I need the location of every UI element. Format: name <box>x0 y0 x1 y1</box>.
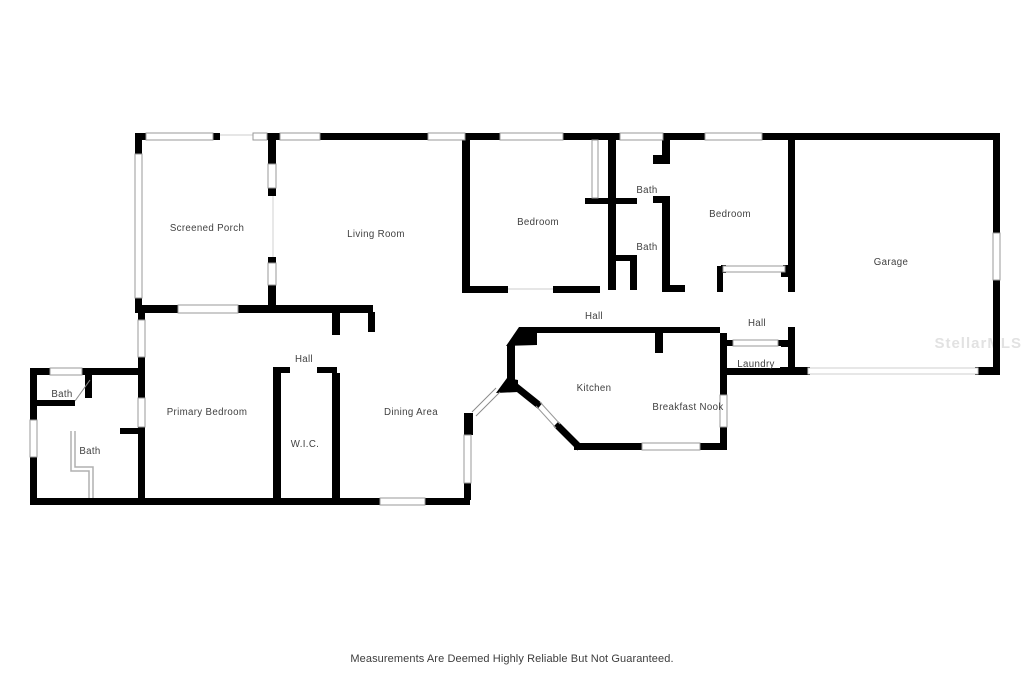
windows-part <box>733 340 778 346</box>
room-label-kitchen: Kitchen <box>577 383 612 394</box>
windows-part <box>723 266 785 272</box>
room-label-dining-area: Dining Area <box>384 407 438 418</box>
windows-part <box>993 233 1000 280</box>
room-label-laundry: Laundry <box>737 359 774 370</box>
garage-door <box>808 368 978 374</box>
windows-part <box>642 443 700 450</box>
walls-part <box>268 285 276 313</box>
shower-outline <box>71 431 89 498</box>
windows-part <box>705 133 762 140</box>
walls-part <box>788 140 795 292</box>
walls-part <box>662 196 670 292</box>
walls-part <box>268 257 276 263</box>
room-label-breakfast-nook: Breakfast Nook <box>652 402 723 413</box>
floor-plan-canvas: StellarMLS <box>0 0 1024 682</box>
windows-part <box>268 164 276 188</box>
walls-part <box>332 373 340 498</box>
walls-part <box>663 133 705 140</box>
walls-part <box>510 382 540 406</box>
disclaimer-text: Measurements Are Deemed Highly Reliable … <box>350 653 673 665</box>
windows-part <box>464 435 471 483</box>
room-label-bath-1: Bath <box>636 185 657 196</box>
walls-part <box>135 140 142 154</box>
walls-part <box>120 428 145 434</box>
walls-part <box>556 424 580 448</box>
walls-part <box>30 375 37 420</box>
walls-part <box>138 312 145 320</box>
room-label-garage: Garage <box>874 257 908 268</box>
walls-part <box>30 368 50 375</box>
stellar-mls-watermark: StellarMLS <box>934 335 1022 352</box>
walls-part <box>563 133 620 140</box>
windows <box>30 133 1000 505</box>
walls-part <box>317 367 337 373</box>
walls-part <box>993 280 1000 375</box>
walls-part <box>462 286 508 293</box>
walls-part <box>700 443 727 450</box>
walls-part <box>135 133 146 140</box>
room-label-hall-right: Hall <box>748 318 766 329</box>
walls-part <box>464 483 471 500</box>
walls-part <box>213 133 220 140</box>
walls-part <box>630 255 637 290</box>
room-label-bedroom-2: Bedroom <box>709 209 751 220</box>
windows-part <box>50 368 82 375</box>
shower-outline <box>75 431 93 498</box>
windows-part <box>138 320 145 357</box>
room-label-screened-porch: Screened Porch <box>170 223 244 234</box>
walls-part <box>268 140 276 164</box>
walls-part <box>762 133 1000 140</box>
room-label-bath-4: Bath <box>79 446 100 457</box>
walls-part <box>465 133 500 140</box>
walls-part <box>507 345 515 380</box>
walls-part <box>135 305 178 313</box>
walls-part <box>273 373 281 498</box>
windows-part <box>280 133 320 140</box>
room-labels: Screened PorchLiving RoomBedroomBathBath… <box>51 185 908 457</box>
walls-part <box>653 155 670 164</box>
walls-part <box>30 498 380 505</box>
windows-part <box>268 263 276 285</box>
windows-part <box>30 420 37 457</box>
walls-part <box>553 286 600 293</box>
walls-part <box>138 357 145 398</box>
windows-part <box>428 133 465 140</box>
windows-part <box>135 154 142 298</box>
walls-part <box>780 367 810 375</box>
walls-part <box>273 367 290 373</box>
walls-part <box>320 133 428 140</box>
windows-part <box>620 133 663 140</box>
windows-part <box>500 133 563 140</box>
walls-part <box>655 333 663 353</box>
room-label-primary-bedroom: Primary Bedroom <box>167 407 248 418</box>
room-label-bedroom-1: Bedroom <box>517 217 559 228</box>
windows-part <box>178 305 238 313</box>
walls-part <box>537 327 720 333</box>
walls-part <box>464 413 473 435</box>
walls-part <box>238 305 373 313</box>
room-label-hall-left: Hall <box>295 354 313 365</box>
walls-part <box>268 188 276 196</box>
walls-part <box>574 443 642 450</box>
windows-part <box>592 140 598 198</box>
walls-part <box>425 498 470 505</box>
walls-part <box>723 340 733 346</box>
windows-part <box>146 133 213 140</box>
room-label-wic: W.I.C. <box>291 439 319 450</box>
walls-part <box>332 310 340 335</box>
windows-part <box>380 498 425 505</box>
floor-plan-page: StellarMLS <box>0 0 1024 682</box>
room-label-bath-3: Bath <box>51 389 72 400</box>
walls-part <box>30 457 37 505</box>
walls <box>30 133 1000 505</box>
windows-part <box>138 398 145 427</box>
walls-part <box>781 340 788 347</box>
windows-part <box>253 133 267 140</box>
room-label-bath-2: Bath <box>636 242 657 253</box>
walls-part <box>662 285 685 292</box>
room-label-hall-main: Hall <box>585 311 603 322</box>
walls-part <box>368 312 375 332</box>
walls-part <box>585 198 637 204</box>
walls-part <box>267 133 280 140</box>
walls-part <box>138 427 145 498</box>
fixtures <box>71 431 93 498</box>
walls-part <box>462 140 470 287</box>
walls-part <box>506 327 537 346</box>
walls-part <box>993 140 1000 233</box>
room-label-living-room: Living Room <box>347 229 405 240</box>
walls-part <box>608 140 616 290</box>
